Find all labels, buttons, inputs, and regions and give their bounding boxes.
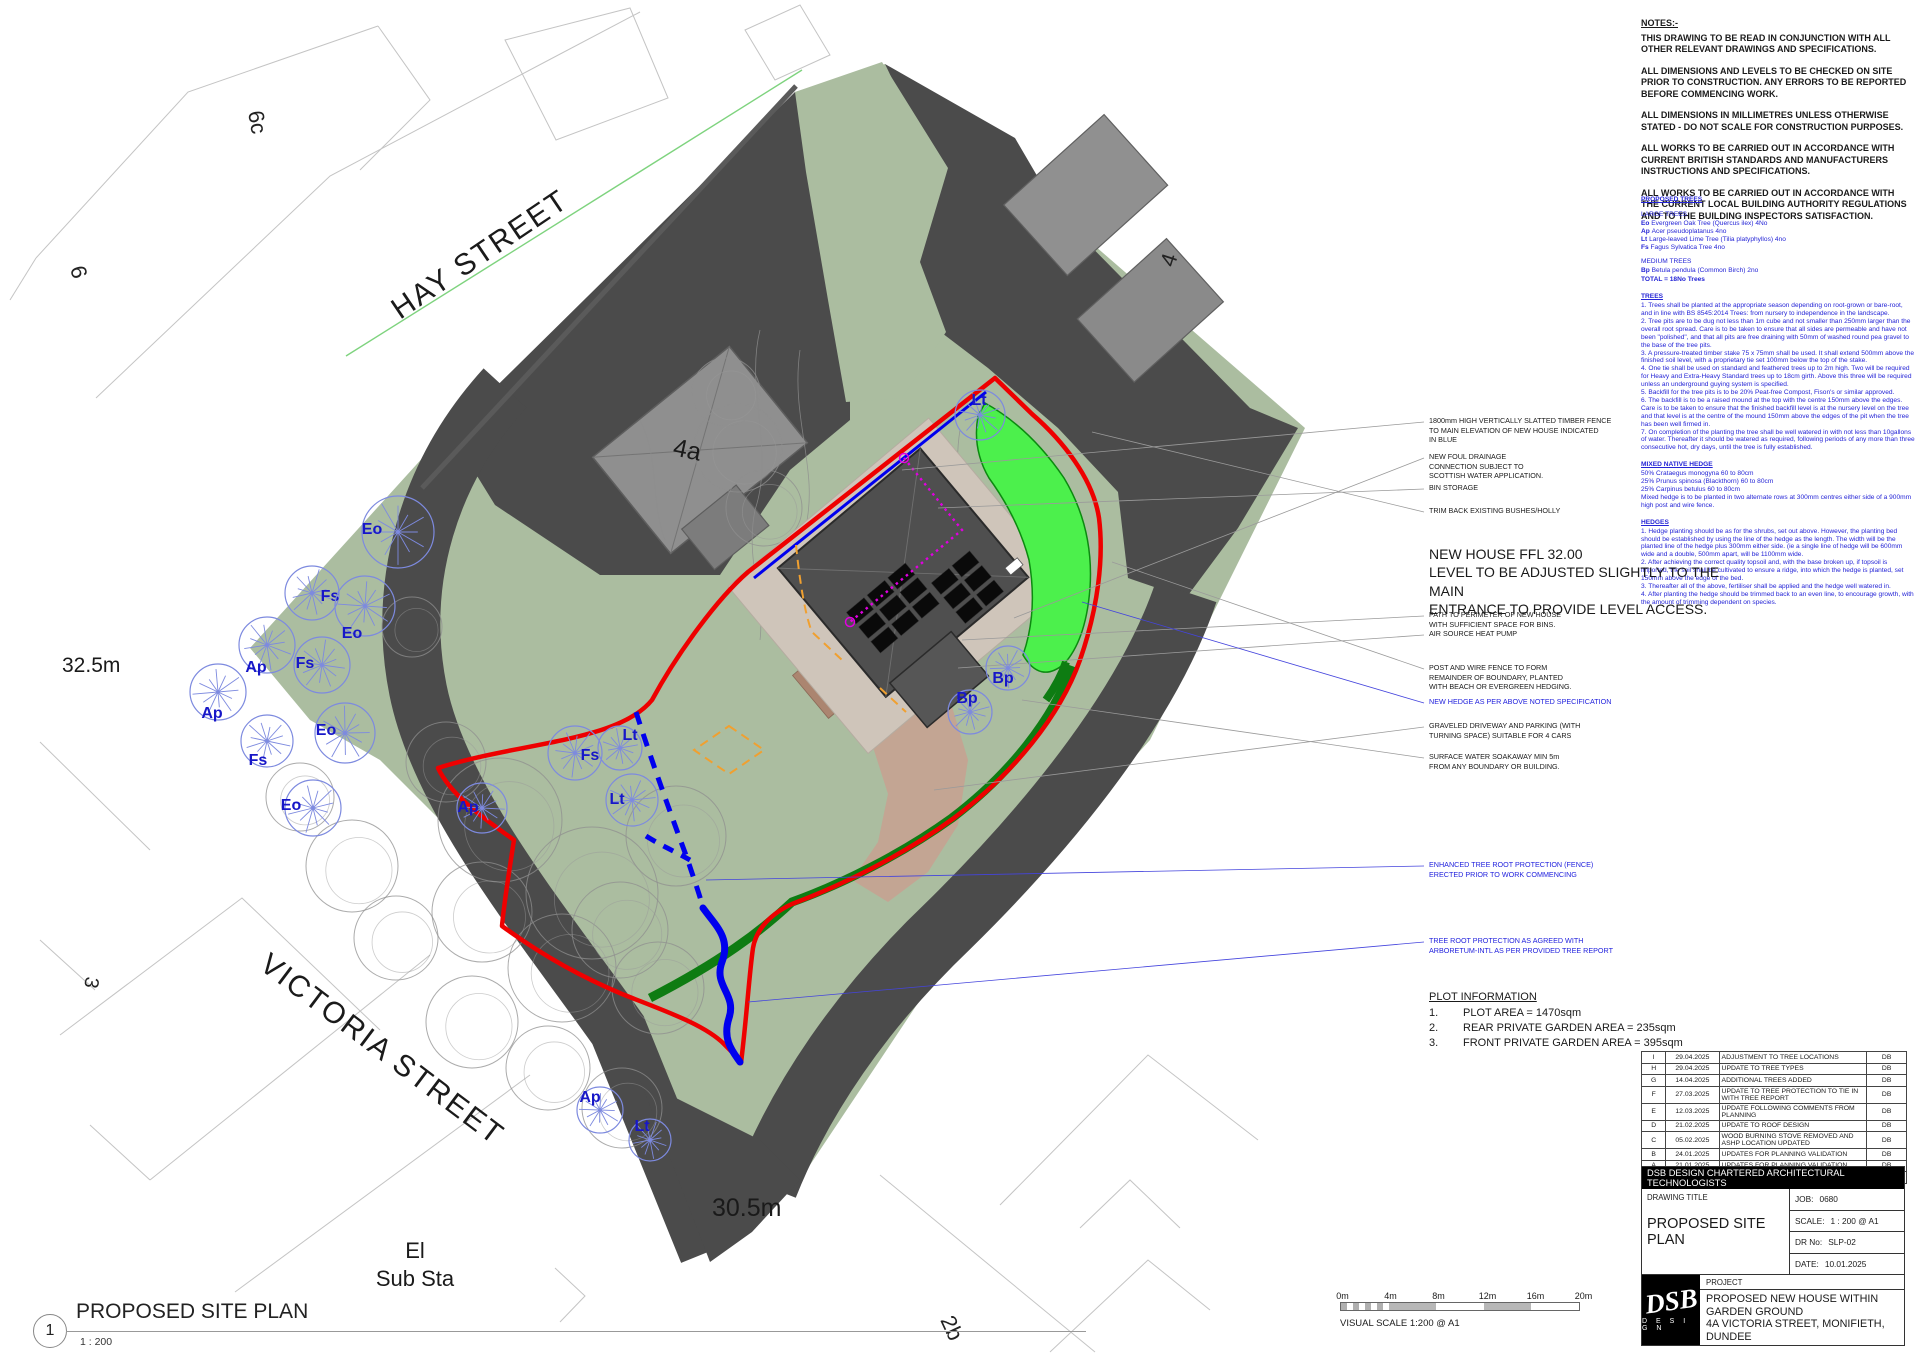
spec-line: 2. Tree pits are to be dug not less than…	[1641, 318, 1915, 350]
scale-tick-label: 16m	[1527, 1291, 1545, 1301]
plan-annotation-7: POST AND WIRE FENCE TO FORM REMAINDER OF…	[1429, 663, 1614, 692]
tree-code-label: Fs	[249, 752, 268, 769]
scale-tick-label: 4m	[1384, 1291, 1397, 1301]
tree-code-label: Ap	[245, 659, 267, 676]
notes-title: NOTES:-	[1641, 18, 1907, 30]
dsb-design-logo: DSB D E S I G N	[1642, 1275, 1700, 1345]
date-label: DATE:	[1795, 1259, 1819, 1269]
plot-info-item: 1.PLOT AREA = 1470sqm	[1429, 1006, 1689, 1021]
plan-annotation-8: NEW HEDGE AS PER ABOVE NOTED SPECIFICATI…	[1429, 697, 1614, 707]
note-paragraph: ALL DIMENSIONS AND LEVELS TO BE CHECKED …	[1641, 66, 1907, 101]
tree-code-label: Eo	[362, 521, 383, 538]
logo-dsb-text: DSB	[1643, 1284, 1699, 1318]
drno-value: SLP-02	[1828, 1237, 1856, 1247]
existing-canopy	[506, 1026, 590, 1110]
plot-2b-label: 2b	[935, 1312, 968, 1345]
view-number-bubble: 1	[33, 1314, 67, 1348]
plan-annotation-5: PATH TO PERIMETER OF NEW HOUSE WITH SUFF…	[1429, 610, 1614, 629]
scale-segment	[1531, 1303, 1579, 1310]
large-trees-title: LARGE TREES	[1641, 211, 1915, 219]
tree-code-label: Lt	[609, 791, 625, 808]
plan-annotation-10: SURFACE WATER SOAKAWAY MIN 5m FROM ANY B…	[1429, 752, 1614, 771]
spec-line: 4. One tie shall be used on standard and…	[1641, 365, 1915, 389]
ffl-line1: NEW HOUSE FFL 32.00	[1429, 545, 1739, 563]
project-line: 4A VICTORIA STREET, MONIFIETH,	[1706, 1318, 1904, 1331]
plot-information: PLOT INFORMATION 1.PLOT AREA = 1470sqm2.…	[1429, 991, 1689, 1051]
plan-annotation-9: GRAVELED DRIVEWAY AND PARKING (WITH TURN…	[1429, 721, 1614, 740]
plan-annotation-11: ENHANCED TREE ROOT PROTECTION (FENCE) ER…	[1429, 860, 1614, 879]
revision-table: I29.04.2025ADJUSTMENT TO TREE LOCATIONSD…	[1641, 1051, 1907, 1184]
spec-line: 25% Carpinus betulus 60 to 80cm	[1641, 486, 1915, 494]
plan-annotation-4: TRIM BACK EXISTING BUSHES/HOLLY	[1429, 506, 1614, 516]
project-line: GARDEN GROUND	[1706, 1306, 1904, 1319]
proposed-trees-title: PROPOSED TREES	[1641, 196, 1915, 204]
view-scale: 1 : 200	[80, 1336, 112, 1348]
house-4a-label: 4a	[671, 433, 704, 466]
ffl-note: NEW HOUSE FFL 32.00 LEVEL TO BE ADJUSTED…	[1429, 545, 1739, 619]
project-address: PROPOSED NEW HOUSE WITHINGARDEN GROUND4A…	[1700, 1290, 1904, 1344]
tree-code-label: Lt	[634, 1118, 650, 1135]
project-label: PROJECT	[1700, 1275, 1904, 1290]
revision-row: G14.04.2025ADDITIONAL TREES ADDEDDB	[1642, 1075, 1906, 1087]
project-line: DUNDEE	[1706, 1331, 1904, 1344]
spec-line: 6. The backfill is to be a raised mound …	[1641, 397, 1915, 429]
revision-row: F27.03.2025UPDATE TO TREE PROTECTION TO …	[1642, 1087, 1906, 1104]
scale-bar	[1340, 1302, 1580, 1311]
revision-row: C05.02.2025WOOD BURNING STOVE REMOVED AN…	[1642, 1132, 1906, 1149]
view-title-rule	[66, 1331, 1086, 1332]
scale-segment	[1436, 1303, 1484, 1310]
tree-code-label: Bp	[992, 670, 1014, 687]
tree-legend-item: Bp Betula pendula (Common Birch) 2no	[1641, 267, 1915, 275]
plot-info-item: 3.FRONT PRIVATE GARDEN AREA = 395sqm	[1429, 1036, 1689, 1051]
tree-legend-item: Ap Acer pseudoplatanus 4no	[1641, 228, 1915, 236]
spec-line: 50% Crataegus monogyna 60 to 80cm	[1641, 470, 1915, 478]
title-block: DSB DESIGN CHARTERED ARCHITECTURAL TECHN…	[1641, 1166, 1905, 1346]
job-number: 0680	[1819, 1194, 1837, 1204]
plan-annotation-1: 1800mm HIGH VERTICALLY SLATTED TIMBER FE…	[1429, 416, 1614, 445]
existing-canopy	[354, 896, 438, 980]
spec-line: 7. On completion of the planting the tre…	[1641, 429, 1915, 453]
tree-legend-item: Eo Evergreen Oak Tree (Quercus ilex) 4No	[1641, 220, 1915, 228]
note-paragraph: ALL DIMENSIONS IN MILLIMETRES UNLESS OTH…	[1641, 110, 1907, 133]
level-325-label: 32.5m	[62, 654, 120, 677]
scale-bar-labels: 0m4m8m12m16m20m	[1340, 1291, 1598, 1302]
substa-label-2: Sub Sta	[376, 1266, 455, 1291]
plan-annotation-3: BIN STORAGE	[1429, 483, 1614, 493]
drawing-title: PROPOSED SITE PLAN	[1647, 1216, 1784, 1248]
scale-tick-label: 20m	[1575, 1291, 1593, 1301]
scale-bar-caption: VISUAL SCALE 1:200 @ A1	[1340, 1318, 1598, 1329]
revision-row: E12.03.2025UPDATE FOLLOWING COMMENTS FRO…	[1642, 1104, 1906, 1121]
revision-row: D21.02.2025UPDATE TO ROOF DESIGNDB	[1642, 1121, 1906, 1133]
existing-canopy-inner	[372, 912, 432, 972]
plot-6-label: 6	[65, 263, 92, 281]
view-number: 1	[46, 1322, 55, 1340]
substa-label-1: El	[405, 1238, 425, 1263]
tree-legend-item: Lt Large-leaved Lime Tree (Tilia platyph…	[1641, 236, 1915, 244]
scale-label: SCALE:	[1795, 1216, 1825, 1226]
plot-3-label: 3	[79, 975, 103, 990]
spec-section-title: MIXED NATIVE HEDGE	[1641, 461, 1915, 469]
spec-line: 3. A pressure-treated timber stake 75 x …	[1641, 350, 1915, 366]
tree-legend-item: Fs Fagus Sylvatica Tree 4no	[1641, 244, 1915, 252]
project-line: PROPOSED NEW HOUSE WITHIN	[1706, 1293, 1904, 1306]
hay-street-label: HAY STREET	[385, 183, 574, 325]
scale-segment	[1484, 1303, 1532, 1310]
scale-tick-label: 8m	[1432, 1291, 1445, 1301]
site-plan-drawing: EoFsEoApFsApFsEoEoApLtFsLtLtBpBpApLt HAY…	[0, 0, 1920, 1356]
job-label: JOB:	[1795, 1194, 1813, 1204]
existing-canopy	[426, 976, 518, 1068]
tree-code-label: Eo	[316, 722, 337, 739]
site-plan-sheet: EoFsEoApFsApFsEoEoApLtFsLtLtBpBpApLt HAY…	[0, 0, 1920, 1356]
spec-line: 1. Trees shall be planted at the appropr…	[1641, 302, 1915, 318]
revision-row: I29.04.2025ADJUSTMENT TO TREE LOCATIONSD…	[1642, 1052, 1906, 1064]
tree-code-label: Lt	[971, 392, 987, 409]
view-title: PROPOSED SITE PLAN	[76, 1300, 308, 1324]
tree-code-label: Ap	[579, 1089, 601, 1106]
revision-row: H29.04.2025UPDATE TO TREE TYPESDB	[1642, 1064, 1906, 1076]
tree-code-label: Fs	[296, 655, 315, 672]
spec-section-title: TREES	[1641, 293, 1915, 301]
plan-annotation-12: TREE ROOT PROTECTION AS AGREED WITH ARBO…	[1429, 936, 1614, 955]
plot-info-item: 2.REAR PRIVATE GARDEN AREA = 235sqm	[1429, 1021, 1689, 1036]
trees-total: TOTAL = 18No Trees	[1641, 276, 1915, 284]
proposed-tree-eo: Eo	[315, 703, 375, 763]
note-paragraph: ALL WORKS TO BE CARRIED OUT IN ACCORDANC…	[1641, 143, 1907, 178]
plan-annotation-2: NEW FOUL DRAINAGE CONNECTION SUBJECT TO …	[1429, 452, 1614, 481]
existing-canopy-inner	[524, 1042, 584, 1102]
spec-line: 25% Prunus spinosa (Blackthorn) 60 to 80…	[1641, 478, 1915, 486]
tree-code-label: Eo	[342, 625, 363, 642]
plan-annotation-6: AIR SOURCE HEAT PUMP	[1429, 629, 1614, 639]
logo-design-text: D E S I G N	[1642, 1318, 1700, 1332]
scale-value: 1 : 200 @ A1	[1831, 1216, 1879, 1226]
revision-row: B24.01.2025UPDATES FOR PLANNING VALIDATI…	[1642, 1149, 1906, 1161]
proposed-tree-fs: Fs	[241, 715, 293, 769]
tree-code-label: Eo	[281, 797, 302, 814]
proposed-tree-ap: Ap	[577, 1087, 623, 1133]
note-paragraph: THIS DRAWING TO BE READ IN CONJUNCTION W…	[1641, 33, 1907, 56]
drno-label: DR No:	[1795, 1237, 1822, 1247]
scale-segment	[1389, 1303, 1437, 1310]
company-banner: DSB DESIGN CHARTERED ARCHITECTURAL TECHN…	[1642, 1167, 1904, 1189]
scale-tick-label: 0m	[1336, 1291, 1349, 1301]
plot-info-title: PLOT INFORMATION	[1429, 991, 1689, 1003]
tree-code-label: Lt	[622, 727, 638, 744]
tree-code-label: Ap	[201, 705, 223, 722]
proposed-tree-ap: Ap	[190, 664, 246, 722]
spec-section-title: HEDGES	[1641, 519, 1915, 527]
drawing-title-label: DRAWING TITLE	[1647, 1193, 1784, 1202]
scale-tick-label: 12m	[1479, 1291, 1497, 1301]
visual-scale-bar: 0m4m8m12m16m20m VISUAL SCALE 1:200 @ A1	[1340, 1291, 1598, 1329]
spec-line: 5. Backfill for the tree pits is to be 2…	[1641, 389, 1915, 397]
tree-code-label: Ap	[457, 799, 479, 816]
plot-6c-label: 6c	[243, 109, 272, 136]
existing-canopy-inner	[326, 837, 392, 903]
spec-line: Mixed hedge is to be planted in two alte…	[1641, 494, 1915, 510]
existing-canopy-inner	[446, 993, 512, 1059]
tree-code-label: Bp	[956, 690, 978, 707]
level-305-label: 30.5m	[712, 1194, 781, 1222]
tree-code-label: Fs	[581, 747, 600, 764]
medium-trees-title: MEDIUM TREES	[1641, 258, 1915, 266]
date-value: 10.01.2025	[1825, 1259, 1867, 1269]
